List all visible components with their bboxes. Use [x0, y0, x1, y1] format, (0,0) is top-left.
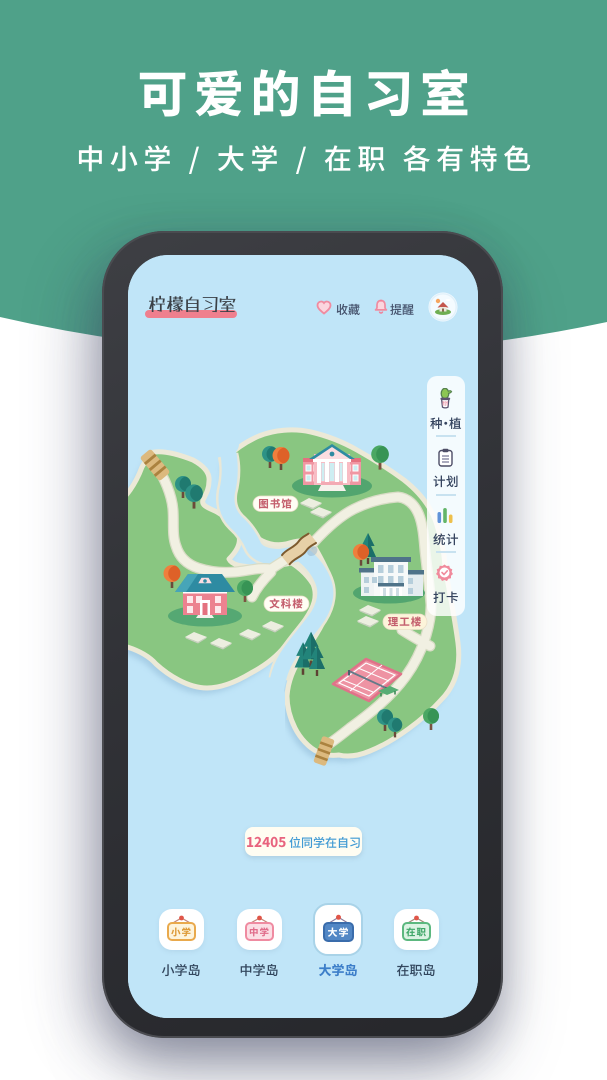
svg-text:大学: 大学	[328, 924, 350, 939]
svg-text:图书馆: 图书馆	[258, 497, 293, 512]
svg-text:理工楼: 理工楼	[388, 615, 423, 630]
svg-text:在职: 在职	[406, 925, 427, 939]
svg-text:中学: 中学	[249, 925, 270, 939]
svg-text:文科楼: 文科楼	[269, 597, 304, 612]
svg-text:小学: 小学	[171, 925, 192, 939]
